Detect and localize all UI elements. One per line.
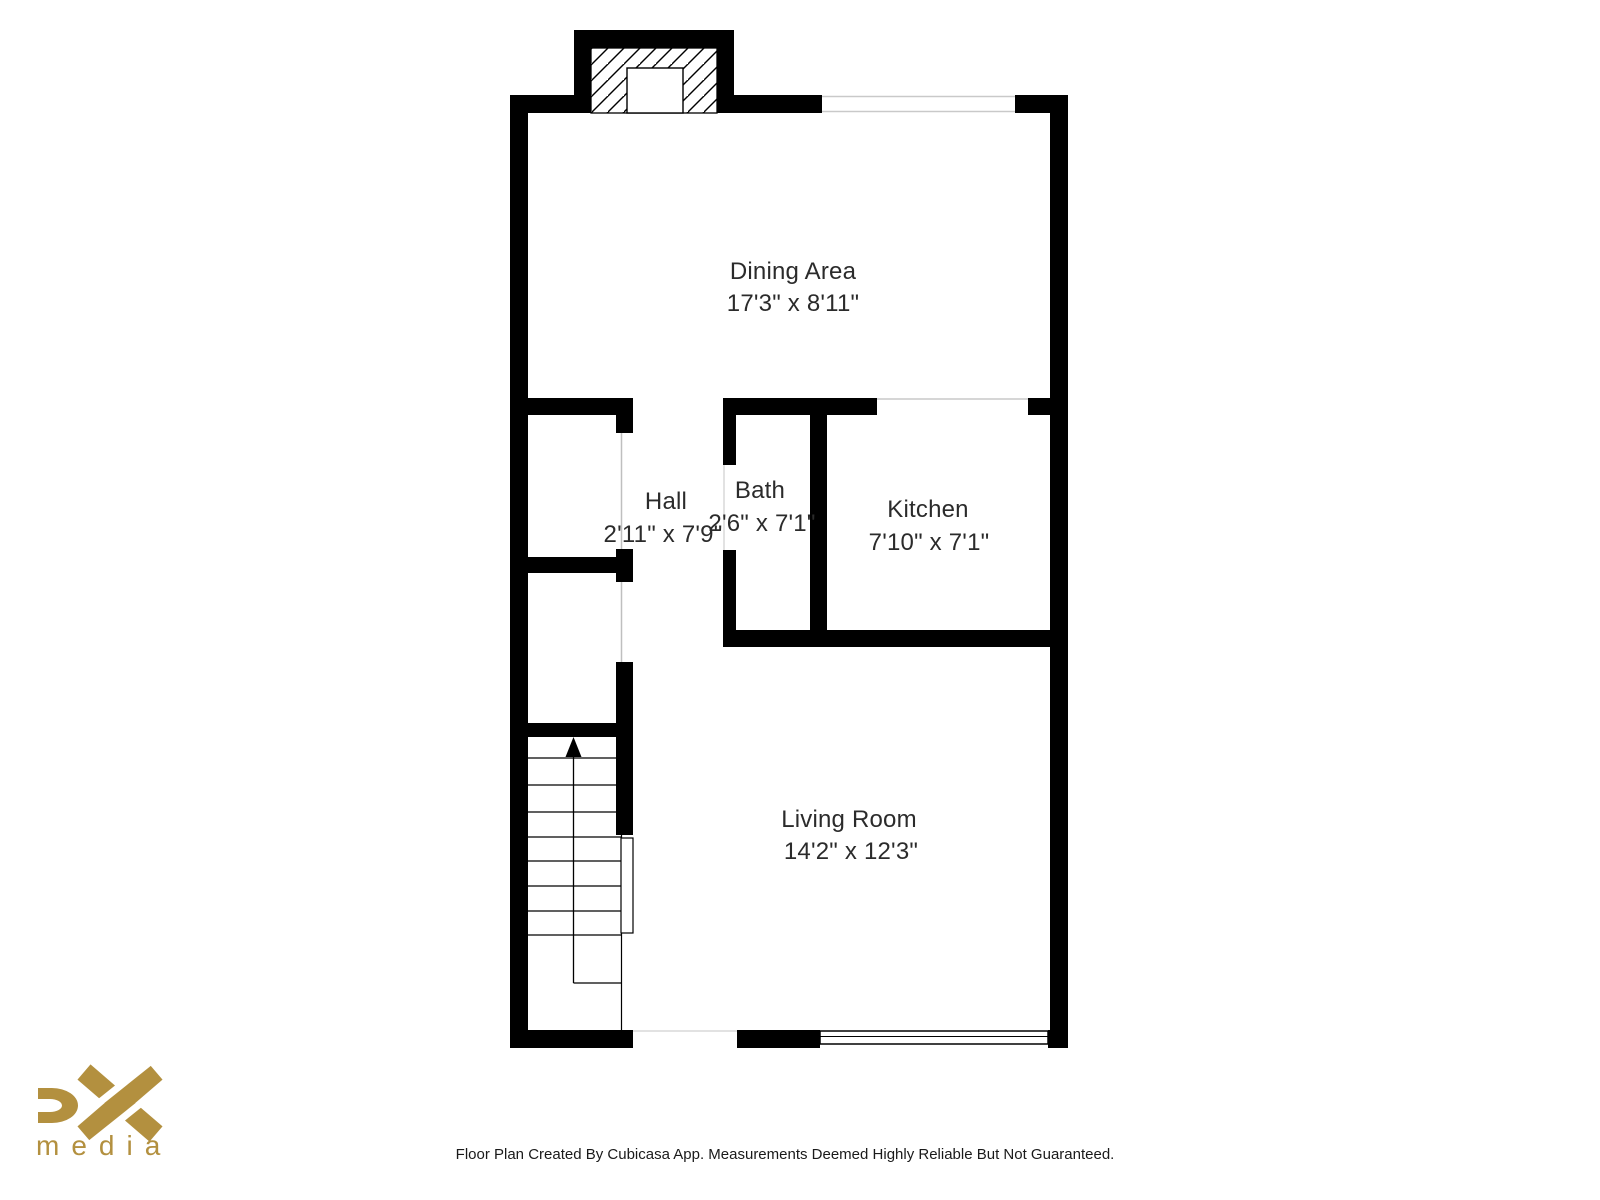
window-top (822, 95, 1015, 113)
logo-media-text: media (36, 1130, 172, 1162)
room-label-living-dims: 14'2" x 12'3" (784, 840, 918, 864)
floor-plan-drawing (0, 0, 1600, 1200)
chimney-structure (574, 30, 734, 113)
wall-living-north (723, 630, 1068, 647)
logo-letter-d (38, 1088, 78, 1123)
wall-closet-top (528, 398, 633, 415)
wall-kitchen-top-a (827, 398, 877, 415)
room-label-hall-name: Hall (645, 490, 687, 514)
wall-top-a (510, 95, 574, 113)
wall-hall-west (616, 662, 633, 835)
wall-top-b (734, 95, 822, 113)
chimney-flue (627, 68, 683, 113)
stair-walk-line (574, 755, 622, 983)
room-label-kitchen-name: Kitchen (887, 498, 968, 522)
wall-bottom-c (1048, 1030, 1068, 1048)
wall-left (510, 95, 528, 1048)
wall-bottom-b (737, 1030, 820, 1048)
room-label-bath-dims: 2'6" x 7'1" (708, 512, 815, 536)
stairs-up-arrow (566, 737, 582, 757)
wall-closet-top-stub (616, 415, 633, 433)
wall-right (1050, 95, 1068, 1048)
stair-treads (528, 758, 622, 935)
window-bottom (820, 1031, 1048, 1044)
stair-railing (621, 838, 633, 933)
wall-closet-divider-stub (616, 549, 633, 582)
wall-kitchen-top-b (1028, 398, 1068, 415)
footer-disclaimer: Floor Plan Created By Cubicasa App. Meas… (456, 1146, 1115, 1163)
room-label-dining-dims: 17'3" x 8'11" (727, 292, 859, 316)
room-label-living-name: Living Room (781, 808, 917, 832)
room-label-bath-name: Bath (735, 479, 785, 503)
room-label-kitchen-dims: 7'10" x 7'1" (869, 531, 990, 555)
room-label-hall-dims: 2'11" x 7'9" (604, 523, 723, 547)
wall-bath-left-upper (723, 398, 736, 465)
interior-walls (528, 398, 1068, 835)
room-label-dining-name: Dining Area (730, 260, 856, 284)
wall-bottom-a (510, 1030, 633, 1048)
floor-plan-page: Dining Area 17'3" x 8'11" Hall 2'11" x 7… (0, 0, 1600, 1200)
